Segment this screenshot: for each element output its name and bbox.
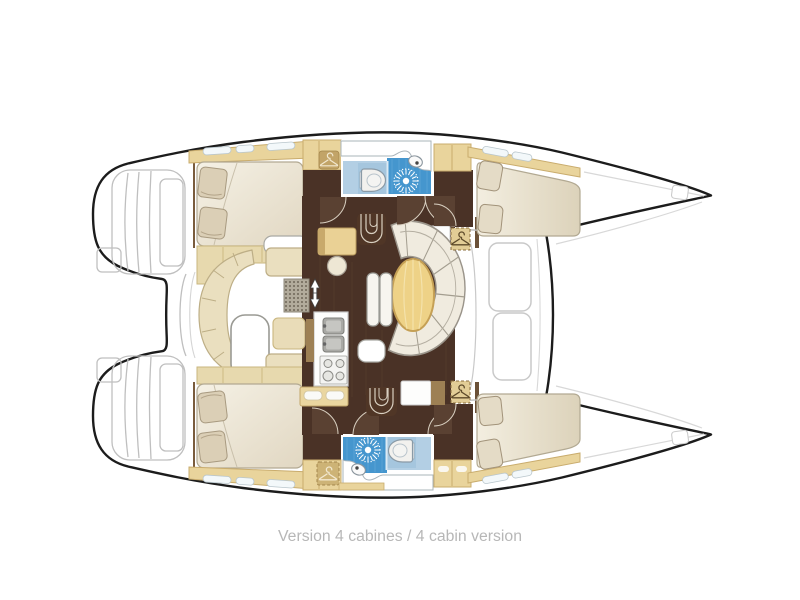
svg-text:Version 4 cabines / 4 cabin ve: Version 4 cabines / 4 cabin version — [278, 528, 522, 545]
